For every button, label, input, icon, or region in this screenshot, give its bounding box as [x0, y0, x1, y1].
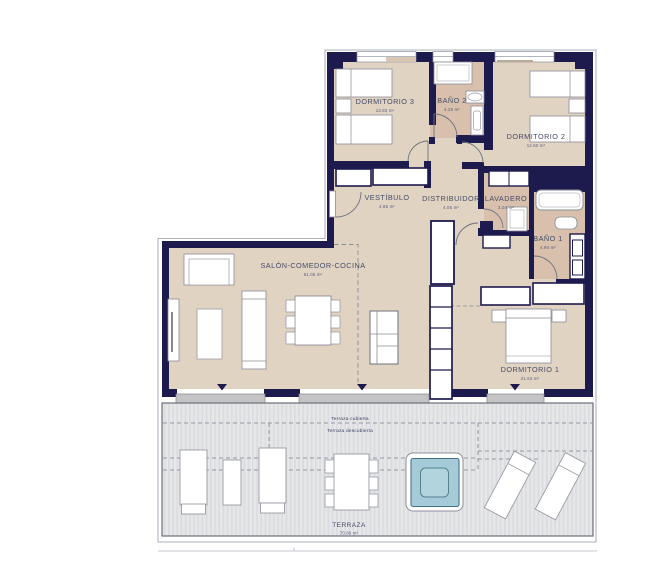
svg-text:VESTÍBULO: VESTÍBULO: [364, 193, 409, 202]
svg-text:4.90 m²: 4.90 m²: [540, 245, 556, 250]
svg-text:LAVADERO: LAVADERO: [485, 194, 527, 203]
svg-text:SALÓN-COMEDOR-COCINA: SALÓN-COMEDOR-COCINA: [260, 261, 365, 270]
svg-text:TERRAZA: TERRAZA: [332, 522, 366, 529]
svg-text:4.85 m²: 4.85 m²: [379, 204, 395, 209]
svg-text:DORMITORIO 3: DORMITORIO 3: [356, 97, 415, 106]
svg-text:4.25 m²: 4.25 m²: [444, 107, 460, 112]
svg-text:12.60 m²: 12.60 m²: [527, 143, 546, 148]
svg-text:13.83 m²: 13.83 m²: [376, 108, 395, 113]
svg-text:BAÑO 2: BAÑO 2: [437, 96, 466, 105]
svg-text:DISTRIBUIDOR: DISTRIBUIDOR: [422, 194, 480, 203]
svg-text:Terraza descubierta: Terraza descubierta: [327, 428, 373, 434]
svg-text:BAÑO 1: BAÑO 1: [533, 234, 562, 243]
svg-text:70.86 m²: 70.86 m²: [340, 531, 359, 536]
svg-text:4.05 m²: 4.05 m²: [443, 205, 459, 210]
svg-text:21.63 m²: 21.63 m²: [521, 376, 540, 381]
svg-text:DORMITORIO 1: DORMITORIO 1: [501, 365, 560, 374]
svg-text:DORMITORIO 2: DORMITORIO 2: [507, 132, 566, 141]
svg-text:3.04 m²: 3.04 m²: [498, 205, 514, 210]
svg-text:Terraza cubierta: Terraza cubierta: [331, 416, 369, 422]
svg-text:51.05 m²: 51.05 m²: [304, 272, 323, 277]
